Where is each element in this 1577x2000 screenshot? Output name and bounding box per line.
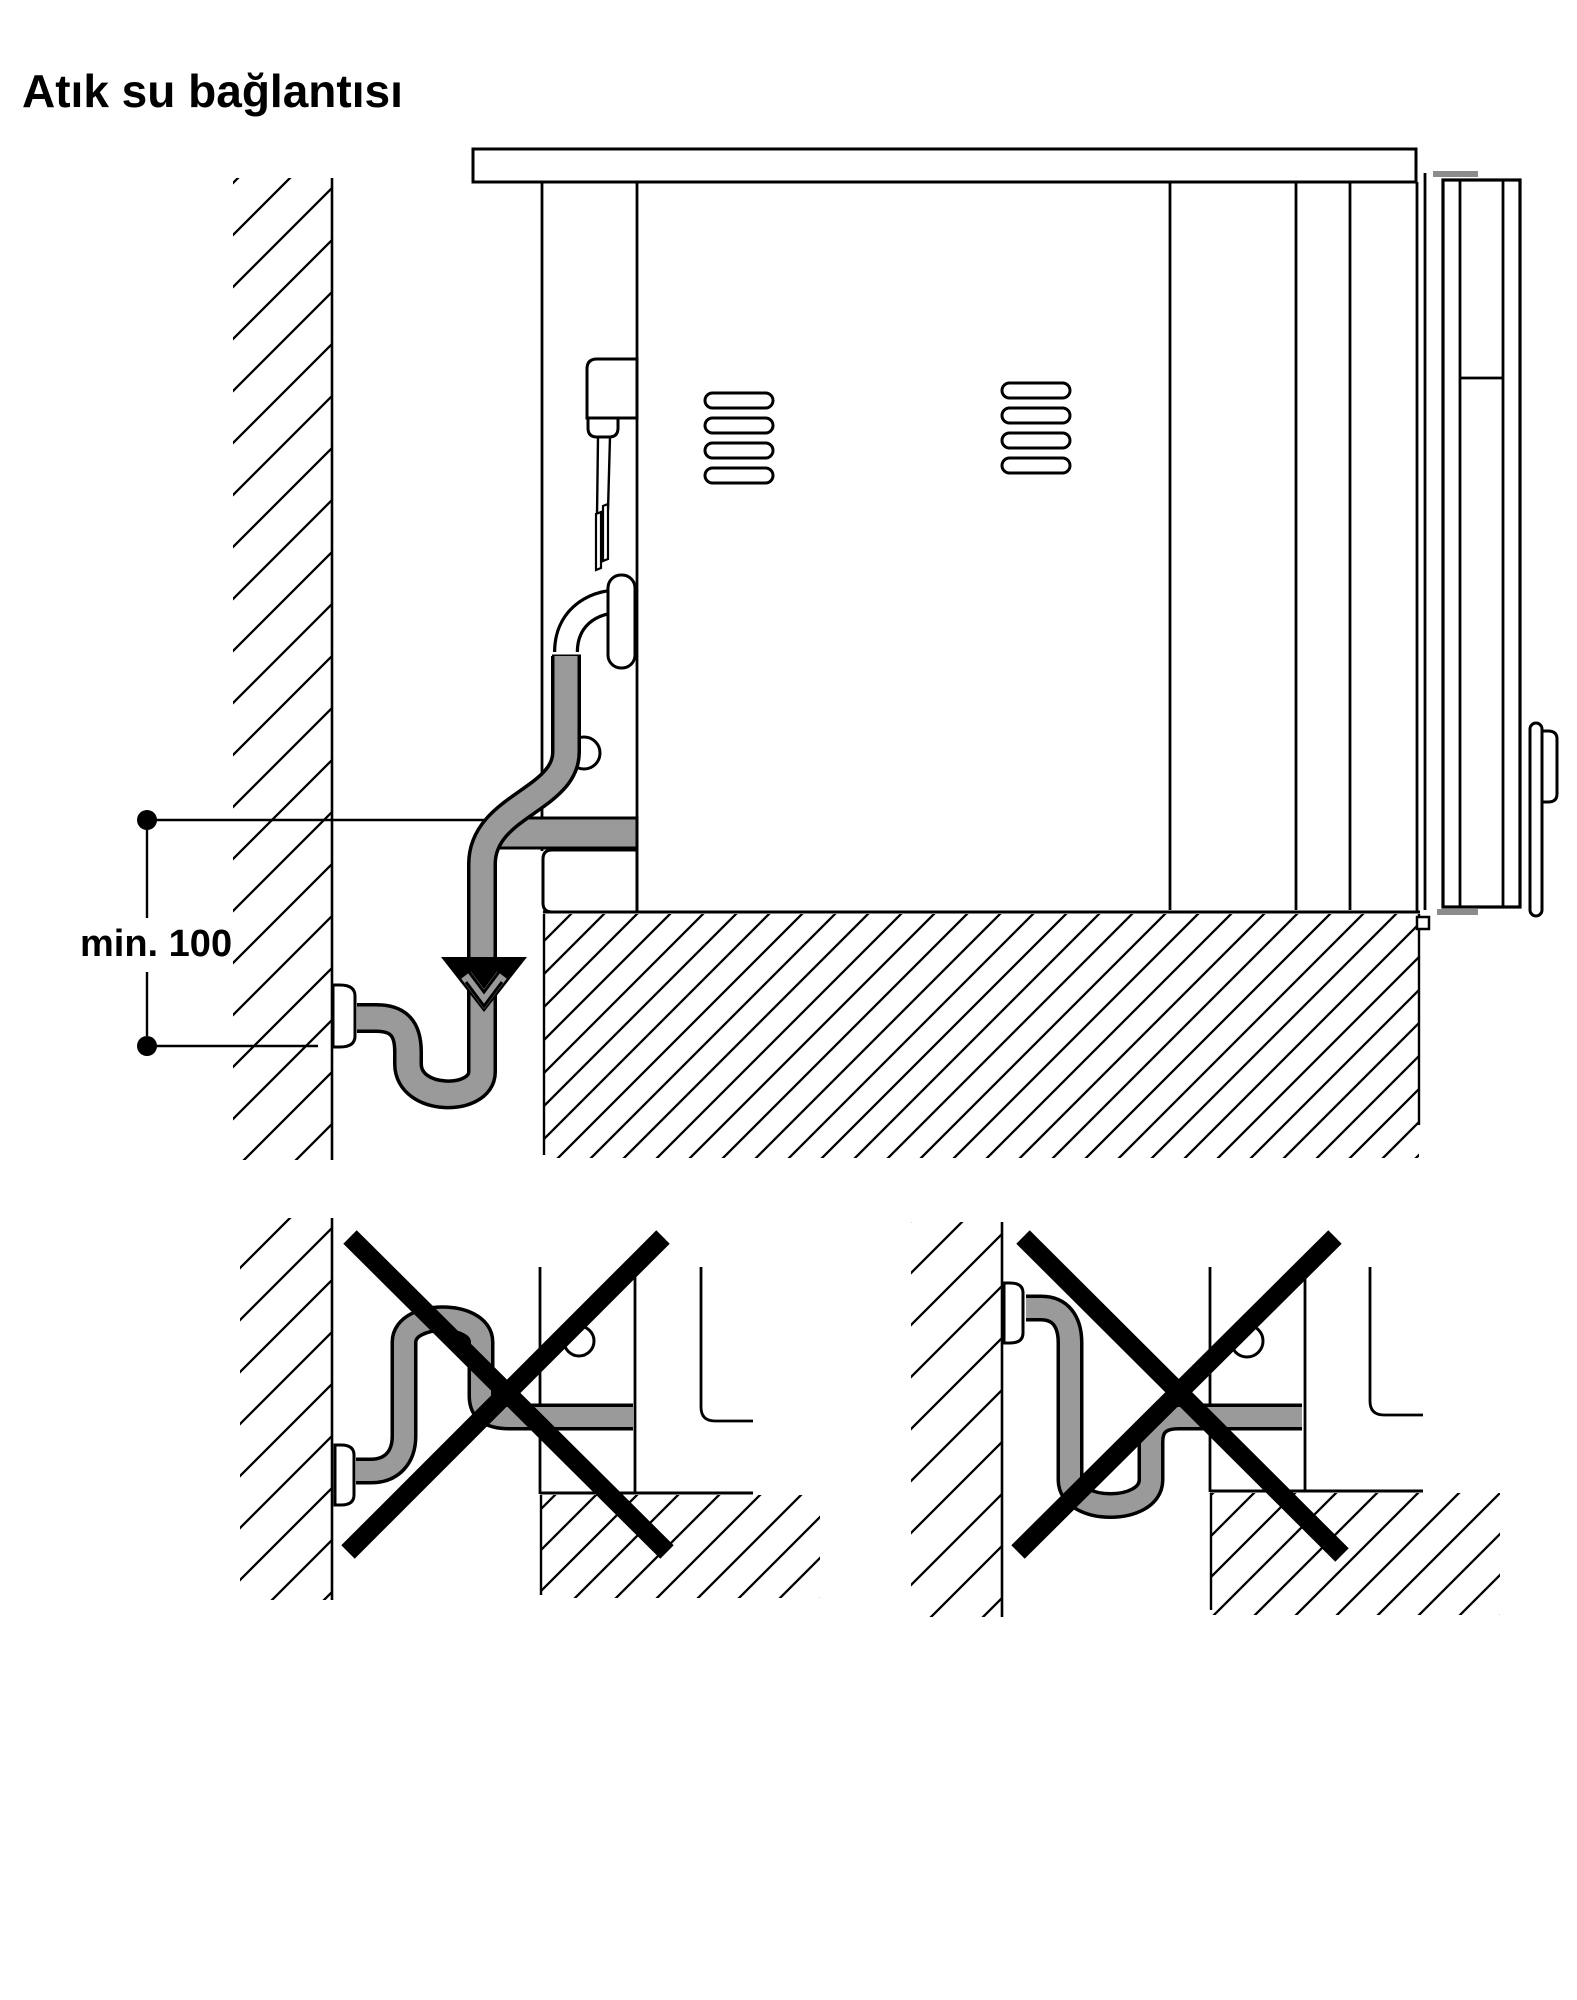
appliance-outline	[701, 1267, 753, 1421]
manual-page: { "page": { "title": "Atık su bağlantısı…	[0, 0, 1577, 2000]
overflow-tube	[596, 437, 610, 570]
door-bottom-hinge	[1417, 917, 1429, 929]
door-handle-bar	[1530, 723, 1542, 916]
drain-valve-box	[587, 359, 637, 418]
cabinet-bottom-panel	[543, 850, 637, 912]
wrong-example-2	[911, 1222, 1500, 1617]
dim-dot-upper	[137, 810, 157, 830]
page-title: Atık su bağlantısı	[22, 65, 403, 117]
door-panel	[1443, 180, 1520, 907]
vent-slots-right	[1002, 383, 1070, 473]
base-hatch	[541, 1495, 820, 1598]
main-diagram: min. 100	[80, 149, 1557, 1160]
door-handle-knob	[1542, 731, 1557, 802]
wall-hatch	[240, 1218, 332, 1600]
base-hatch	[544, 914, 1419, 1158]
flow-arrow-icon	[441, 957, 527, 1012]
vent-slots-left	[705, 393, 773, 483]
wall-drain-socket	[335, 1445, 354, 1505]
wall-drain-socket	[333, 985, 355, 1047]
drain-hose	[357, 656, 566, 1094]
wall-hatch	[911, 1222, 1003, 1617]
wall-hatch	[233, 178, 332, 1160]
door-top-trim	[1433, 171, 1478, 177]
appliance-door	[1417, 171, 1557, 929]
drain-valve-step	[588, 418, 618, 437]
door-bottom-trim	[1437, 909, 1478, 915]
countertop	[473, 149, 1416, 182]
wrong-example-1	[240, 1218, 820, 1600]
wall-drain-socket	[1004, 1283, 1023, 1343]
dimension-label: min. 100	[80, 923, 232, 965]
installation-diagram-canvas: min. 100	[0, 0, 1577, 2000]
hose-spigot	[608, 575, 635, 668]
appliance-outline	[1370, 1267, 1423, 1415]
base-hatch	[1211, 1493, 1500, 1615]
